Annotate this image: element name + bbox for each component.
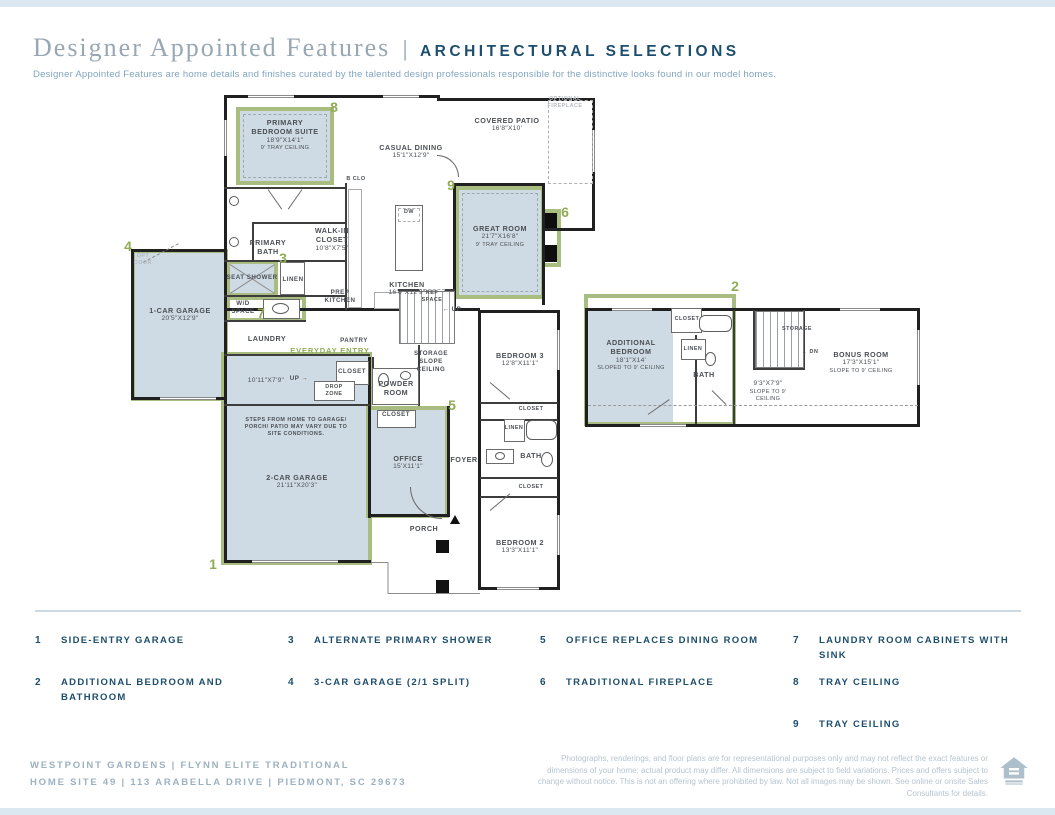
legend-column-3: 5OFFICE REPLACES DINING ROOM6TRADITIONAL… (540, 634, 780, 718)
room-label-linen-additional-rn: LINEN (680, 346, 706, 353)
room-label-wd-space: W/D SPACE (225, 300, 261, 316)
room-label-primary-bedroom-suite-rd: 18'9"X14'1" (247, 137, 323, 146)
room-label-ref-space: REF SPACE (419, 290, 445, 304)
room-label-walk-in-closet-rn: WALK-IN CLOSET (303, 226, 361, 245)
room-label-one-car-garage: 1-CAR GARAGE20'5"X12'9" (145, 306, 215, 324)
room-label-office-rn: OFFICE (381, 454, 435, 463)
room-label-dishwasher-rn: DW (400, 209, 418, 216)
room-label-kitchen-rn: KITCHEN (372, 280, 442, 289)
room-label-drop-zone-rn: DROP ZONE (316, 384, 352, 398)
room-label-one-car-garage-rd: 20'5"X12'9" (145, 315, 215, 324)
garage-door (252, 560, 338, 563)
optional-fireplace-box (548, 100, 593, 184)
room-label-casual-dining-rn: CASUAL DINING (376, 143, 446, 152)
wall-segment (733, 310, 735, 424)
garage-door (160, 397, 216, 400)
room-label-powder-room: POWDER ROOM (368, 379, 424, 398)
entry-arrow (450, 515, 460, 524)
wall-segment (455, 183, 545, 186)
room-label-casual-dining: CASUAL DINING15'1"X12'9" (376, 143, 446, 161)
room-label-closet-office-rn: CLOSET (379, 411, 413, 419)
room-label-prep-kitchen: PREP KITCHEN (318, 289, 362, 305)
wall-segment (753, 368, 805, 370)
room-label-porch-rn: PORCH (402, 524, 446, 533)
feature-callout-1: 1 (209, 556, 217, 572)
legend-item-label: TRAY CEILING (819, 676, 901, 691)
room-label-additional-bedroom-rt: SLOPED TO 9' CEILING (593, 365, 669, 372)
sink-icon (229, 237, 239, 247)
room-label-additional-bedroom: ADDITIONAL BEDROOM18'1"X14'SLOPED TO 9' … (593, 338, 669, 373)
room-label-opt-door-rn: OPT DOOR (129, 253, 157, 267)
room-label-stairs-up: ← UP (437, 306, 467, 314)
legend-item-1: 1SIDE-ENTRY GARAGE (35, 634, 270, 676)
room-label-upper-landing-rd: 9'3"X7'9" (740, 380, 796, 389)
room-label-two-car-garage-rn: 2-CAR GARAGE (259, 473, 335, 482)
legend-item-label: TRAY CEILING (819, 718, 901, 733)
bathtub-icon (526, 420, 557, 440)
wall-segment (480, 496, 558, 498)
room-label-closet-everyday-rn: CLOSET (335, 368, 369, 376)
sink-icon (495, 452, 505, 460)
room-label-storage-additional-rn: STORAGE (777, 326, 817, 333)
legend-item-number: 4 (288, 676, 298, 688)
legend-item-label: ADDITIONAL BEDROOM AND BATHROOM (61, 676, 270, 705)
room-label-stairs-dn: ← DN (795, 349, 825, 356)
legend-item-number: 8 (793, 676, 803, 688)
legend-item-label: ALTERNATE PRIMARY SHOWER (314, 634, 493, 649)
room-label-great-room: GREAT ROOM21'7"X16'8"9' TRAY CEILING (465, 224, 535, 249)
legend-item-label: TRADITIONAL FIREPLACE (566, 676, 714, 691)
room-label-powder-room-rn: POWDER ROOM (368, 379, 424, 398)
door-leaf (268, 189, 283, 209)
room-label-bonus-room-rd: 17'3"X15'1" (826, 359, 896, 368)
room-label-bedroom-closet: B CLO (344, 176, 368, 183)
room-label-primary-bedroom-suite-rn: PRIMARY BEDROOM SUITE (247, 118, 323, 137)
legend-item-number: 6 (540, 676, 550, 688)
wall-segment (131, 249, 227, 252)
room-label-hall-bath: BATH (513, 451, 549, 460)
room-label-office-rd: 15'X11'1" (381, 463, 435, 472)
room-label-casual-dining-rd: 15'1"X12'9" (376, 152, 446, 161)
room-label-prep-kitchen-rn: PREP KITCHEN (318, 289, 362, 305)
room-label-office: OFFICE15'X11'1" (381, 454, 435, 472)
room-label-bedroom-2: BEDROOM 213'3"X11'1" (485, 538, 555, 556)
room-label-linen-primary-rn: LINEN (278, 276, 308, 284)
room-label-dishwasher: DW (400, 209, 418, 216)
room-label-linen-hall-rn: LINEN (501, 425, 527, 432)
room-label-two-car-garage-rd: 21'11"X20'3" (259, 482, 335, 491)
window (248, 95, 294, 98)
legend-item-number: 9 (793, 718, 803, 730)
feature-callout-6: 6 (561, 204, 569, 220)
room-label-everyday-entry: EVERYDAY ENTRY (288, 346, 372, 356)
room-label-wd-space-rn: W/D SPACE (225, 300, 261, 316)
window (917, 330, 920, 385)
ceiling-break-dashed-line (588, 405, 918, 406)
feature-callout-4: 4 (124, 238, 132, 254)
room-label-one-car-garage-rn: 1-CAR GARAGE (145, 306, 215, 315)
feature-callout-8: 8 (330, 99, 338, 115)
room-label-stairs-up-flex-rn: UP → (285, 375, 313, 383)
window (640, 424, 686, 427)
room-label-closet-bedroom3-rn: CLOSET (514, 406, 548, 413)
room-label-covered-patio: COVERED PATIO16'8"X10' (472, 116, 542, 134)
room-label-additional-bedroom-rd: 18'1"X14' (593, 357, 669, 366)
porch-edge (388, 593, 480, 594)
room-label-linen-hall: LINEN (501, 425, 527, 432)
legend-item-label: OFFICE REPLACES DINING ROOM (566, 634, 758, 649)
legend-item-label: 3-CAR GARAGE (2/1 SPLIT) (314, 676, 470, 691)
room-label-optional-fireplace-rn: OPTIONAL FIREPLACE (539, 96, 591, 110)
room-label-linen-additional: LINEN (680, 346, 706, 353)
room-label-linen-primary: LINEN (278, 276, 308, 284)
legend-item-8: 8TRAY CEILING (793, 676, 1033, 718)
feature-callout-2: 2 (731, 278, 739, 294)
room-label-bonus-room-rt: SLOPE TO 9' CEILING (826, 368, 896, 375)
window (612, 308, 652, 311)
room-label-foyer-rn: FOYER (444, 455, 484, 464)
legend-column-4: 7LAUNDRY ROOM CABINETS WITH SINK8TRAY CE… (793, 634, 1033, 760)
room-label-great-room-rn: GREAT ROOM (465, 224, 535, 233)
porch-post (436, 540, 449, 553)
room-label-bath-additional: BATH (686, 370, 722, 379)
equal-housing-opportunity-icon (997, 756, 1031, 786)
room-label-closet-everyday: CLOSET (335, 368, 369, 376)
disclaimer-text: Photographs, renderings, and floor plans… (530, 753, 988, 799)
window (497, 587, 539, 590)
room-label-two-car-garage: 2-CAR GARAGE21'11"X20'3" (259, 473, 335, 491)
room-label-foyer: FOYER (444, 455, 484, 464)
wall-segment (252, 222, 346, 224)
wall-segment (224, 187, 346, 189)
room-label-laundry: LAUNDRY (235, 334, 299, 343)
room-label-seat-shower: SEAT SHOWER (224, 274, 280, 282)
room-label-storage-slope-ceiling-rn: STORAGE SLOPE CEILING (407, 350, 455, 374)
legend-column-1: 1SIDE-ENTRY GARAGE2ADDITIONAL BEDROOM AN… (35, 634, 270, 718)
feature-callout-5: 5 (448, 397, 456, 413)
door-leaf (490, 382, 511, 399)
window (383, 95, 419, 98)
wall-segment (585, 308, 588, 427)
wall-segment (131, 249, 134, 400)
window (557, 515, 560, 555)
room-label-bedroom-3-rd: 12'8"X11'1" (485, 360, 555, 369)
wall-segment (478, 310, 560, 313)
room-label-bonus-room: BONUS ROOM17'3"X15'1"SLOPE TO 9' CEILING (826, 350, 896, 375)
porch-edge (371, 562, 388, 563)
community-line2: HOME SITE 49 | 113 ARABELLA DRIVE | PIED… (30, 774, 406, 791)
community-info: WESTPOINT GARDENS | FLYNN ELITE TRADITIO… (30, 757, 406, 791)
room-label-laundry-rn: LAUNDRY (235, 334, 299, 343)
room-label-bonus-room-rn: BONUS ROOM (826, 350, 896, 359)
wall-segment (542, 183, 545, 305)
sink-icon (272, 303, 289, 314)
sink-icon (229, 196, 239, 206)
room-label-closet-bedroom2: CLOSET (514, 484, 548, 491)
room-label-pantry-rn: PANTRY (332, 337, 376, 345)
legend-item-3: 3ALTERNATE PRIMARY SHOWER (288, 634, 523, 676)
room-label-primary-bedroom-suite-rt: 9' TRAY CEILING (247, 145, 323, 152)
window (840, 308, 880, 311)
room-label-hall-bath-rn: BATH (513, 451, 549, 460)
community-line1: WESTPOINT GARDENS | FLYNN ELITE TRADITIO… (30, 757, 406, 774)
room-label-bedroom-3: BEDROOM 312'8"X11'1" (485, 351, 555, 369)
feature-callout-7: 7 (257, 305, 265, 321)
room-label-seat-shower-rn: SEAT SHOWER (224, 274, 280, 282)
wall-segment (480, 477, 558, 479)
room-label-steps-note-rn: STEPS FROM HOME TO GARAGE/ PORCH/ PATIO … (237, 417, 355, 438)
room-label-bath-additional-rn: BATH (686, 370, 722, 379)
legend-item-label: SIDE-ENTRY GARAGE (61, 634, 184, 649)
room-label-steps-note: STEPS FROM HOME TO GARAGE/ PORCH/ PATIO … (237, 417, 355, 438)
legend-item-6: 6TRADITIONAL FIREPLACE (540, 676, 780, 718)
legend-item-number: 1 (35, 634, 45, 646)
feature-callout-3: 3 (279, 250, 287, 266)
room-label-closet-bedroom2-rn: CLOSET (514, 484, 548, 491)
room-label-stairs-up-rn: ← UP (437, 306, 467, 314)
room-label-bedroom-2-rd: 13'3"X11'1" (485, 547, 555, 556)
wall-segment (224, 404, 370, 406)
room-label-storage-slope-ceiling: STORAGE SLOPE CEILING (407, 350, 455, 374)
room-label-bedroom-closet-rn: B CLO (344, 176, 368, 183)
room-label-optional-fireplace: OPTIONAL FIREPLACE (539, 96, 591, 110)
legend-column-2: 3ALTERNATE PRIMARY SHOWER43-CAR GARAGE (… (288, 634, 523, 718)
room-label-opt-door: OPT DOOR (129, 253, 157, 267)
window (224, 120, 227, 156)
room-label-great-room-rd: 21'7"X16'8" (465, 233, 535, 242)
room-label-bedroom-2-rn: BEDROOM 2 (485, 538, 555, 547)
room-label-primary-bath-rn: PRIMARY BATH (240, 238, 296, 257)
wall-segment (224, 95, 227, 563)
legend-item-5: 5OFFICE REPLACES DINING ROOM (540, 634, 780, 676)
legend-item-7: 7LAUNDRY ROOM CABINETS WITH SINK (793, 634, 1033, 676)
legend-divider-line (35, 610, 1021, 612)
room-label-walk-in-closet: WALK-IN CLOSET10'8"X7'5" (303, 226, 361, 253)
room-label-closet-bedroom3: CLOSET (514, 406, 548, 413)
room-label-everyday-entry-rn: EVERYDAY ENTRY (288, 346, 372, 356)
legend-item-label: LAUNDRY ROOM CABINETS WITH SINK (819, 634, 1033, 663)
porch-post (436, 580, 449, 593)
room-label-closet-office: CLOSET (379, 411, 413, 419)
room-label-walk-in-closet-rd: 10'8"X7'5" (303, 245, 361, 254)
wall-segment (585, 424, 920, 427)
legend-item-number: 5 (540, 634, 550, 646)
room-label-additional-bedroom-rn: ADDITIONAL BEDROOM (593, 338, 669, 357)
room-label-upper-landing-rt: SLOPE TO 9' CEILING (740, 389, 796, 404)
room-label-upper-landing: 9'3"X7'9"SLOPE TO 9' CEILING (740, 380, 796, 403)
room-label-bedroom-3-rn: BEDROOM 3 (485, 351, 555, 360)
wall-segment (480, 402, 558, 404)
room-label-primary-bedroom-suite: PRIMARY BEDROOM SUITE18'9"X14'1"9' TRAY … (247, 118, 323, 153)
legend-item-2: 2ADDITIONAL BEDROOM AND BATHROOM (35, 676, 270, 718)
wall-segment (478, 310, 481, 590)
room-label-pantry: PANTRY (332, 337, 376, 345)
feature-callout-9: 9 (447, 177, 455, 193)
room-label-covered-patio-rn: COVERED PATIO (472, 116, 542, 125)
window (557, 330, 560, 370)
room-label-primary-bath: PRIMARY BATH (240, 238, 296, 257)
highlight-1-car-garage (131, 249, 228, 401)
stairs-down (755, 311, 804, 368)
flyer-page: Designer Appointed Features | ARCHITECTU… (0, 0, 1055, 815)
room-label-great-room-rt: 9' TRAY CEILING (465, 242, 535, 249)
legend-item-number: 2 (35, 676, 45, 688)
room-label-covered-patio-rd: 16'8"X10' (472, 125, 542, 134)
room-label-storage-additional: STORAGE (777, 326, 817, 333)
room-label-drop-zone: DROP ZONE (316, 384, 352, 398)
room-label-stairs-dn-rn: ← DN (795, 349, 825, 356)
toilet-icon (705, 352, 716, 366)
room-label-ref-space-rn: REF SPACE (419, 290, 445, 304)
fireplace-icon (545, 245, 557, 262)
legend-item-4: 43-CAR GARAGE (2/1 SPLIT) (288, 676, 523, 718)
room-label-stairs-up-flex: UP → (285, 375, 313, 383)
door-leaf (288, 189, 303, 209)
legend-item-number: 7 (793, 634, 803, 646)
wall-segment (543, 228, 595, 231)
porch-edge (388, 563, 389, 594)
room-label-closet-additional: CLOSET (670, 316, 704, 323)
room-label-closet-additional-rn: CLOSET (670, 316, 704, 323)
legend-item-number: 3 (288, 634, 298, 646)
room-label-porch: PORCH (402, 524, 446, 533)
